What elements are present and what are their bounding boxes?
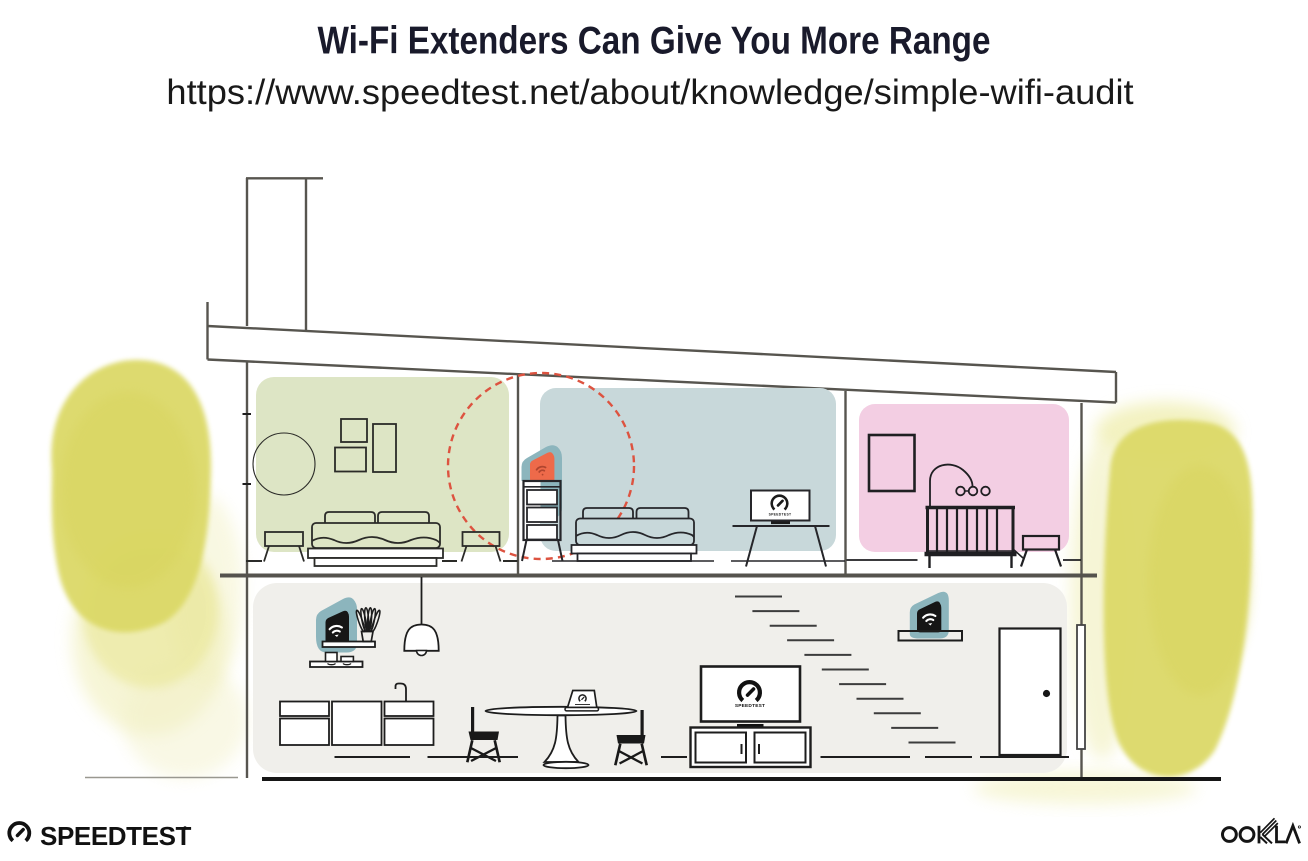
svg-text:SPEEDTEST: SPEEDTEST [735, 703, 765, 709]
svg-text:SPEEDTEST: SPEEDTEST [769, 513, 792, 517]
svg-text:Wi-Fi Extenders Can Give You M: Wi-Fi Extenders Can Give You More Range [318, 18, 991, 62]
svg-text:SPEEDTEST: SPEEDTEST [40, 821, 192, 851]
svg-text:https://www.speedtest.net/abou: https://www.speedtest.net/about/knowledg… [166, 73, 1133, 112]
